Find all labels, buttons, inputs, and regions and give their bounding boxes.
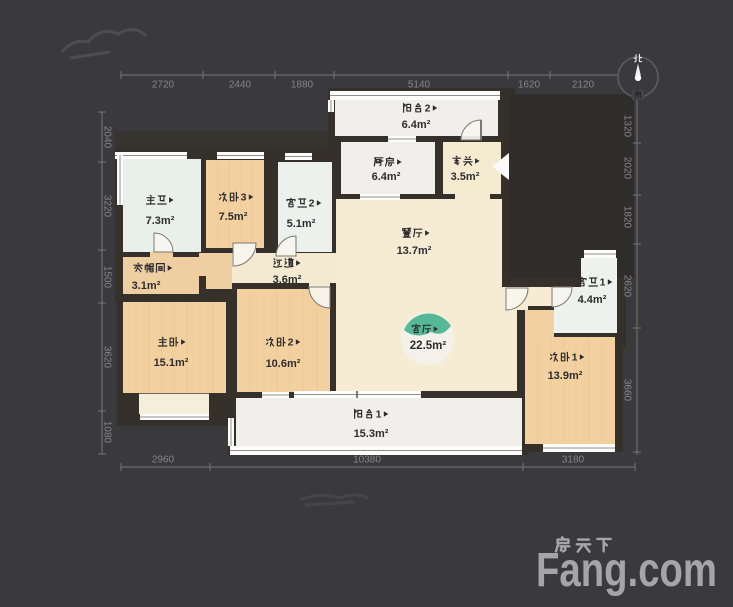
svg-text:1: 1 — [376, 409, 382, 421]
svg-text:1820: 1820 — [621, 206, 632, 229]
svg-text:3660: 3660 — [621, 379, 632, 402]
svg-text:15.3m²: 15.3m² — [354, 428, 389, 440]
svg-text:15.1m²: 15.1m² — [154, 357, 189, 369]
svg-text:13.7m²: 13.7m² — [397, 245, 432, 257]
svg-text:7.3m²: 7.3m² — [146, 215, 175, 227]
svg-text:3: 3 — [241, 192, 247, 204]
svg-text:2440: 2440 — [229, 80, 252, 91]
svg-text:10.6m²: 10.6m² — [266, 358, 301, 370]
svg-text:2720: 2720 — [152, 80, 175, 91]
svg-text:1320: 1320 — [621, 115, 632, 138]
svg-text:22.5m²: 22.5m² — [410, 340, 447, 352]
svg-text:1500: 1500 — [101, 266, 112, 289]
svg-text:3.1m²: 3.1m² — [132, 280, 161, 292]
svg-text:2120: 2120 — [572, 80, 595, 91]
svg-text:3220: 3220 — [101, 195, 112, 218]
svg-text:1880: 1880 — [291, 80, 314, 91]
svg-text:7.5m²: 7.5m² — [219, 211, 248, 223]
svg-text:2040: 2040 — [101, 126, 112, 149]
svg-text:Fang.com: Fang.com — [536, 544, 717, 597]
svg-text:5.1m²: 5.1m² — [287, 218, 316, 230]
svg-text:6.4m²: 6.4m² — [402, 119, 431, 131]
svg-text:3.5m²: 3.5m² — [451, 171, 480, 183]
svg-text:1: 1 — [572, 352, 578, 364]
svg-text:1: 1 — [600, 277, 606, 289]
svg-text:1620: 1620 — [518, 80, 541, 91]
svg-text:2: 2 — [309, 198, 315, 210]
svg-text:6.4m²: 6.4m² — [372, 171, 401, 183]
svg-text:2620: 2620 — [621, 275, 632, 298]
svg-text:1080: 1080 — [101, 421, 112, 444]
svg-text:5140: 5140 — [408, 80, 431, 91]
svg-text:10380: 10380 — [353, 455, 381, 466]
svg-text:4.4m²: 4.4m² — [578, 294, 607, 306]
svg-text:3.6m²: 3.6m² — [273, 274, 302, 286]
svg-text:2: 2 — [425, 103, 431, 115]
svg-text:2960: 2960 — [152, 455, 175, 466]
svg-text:2: 2 — [288, 337, 294, 349]
svg-text:3620: 3620 — [101, 346, 112, 369]
svg-text:3180: 3180 — [562, 455, 585, 466]
svg-text:2020: 2020 — [621, 157, 632, 180]
svg-text:13.9m²: 13.9m² — [548, 370, 583, 382]
